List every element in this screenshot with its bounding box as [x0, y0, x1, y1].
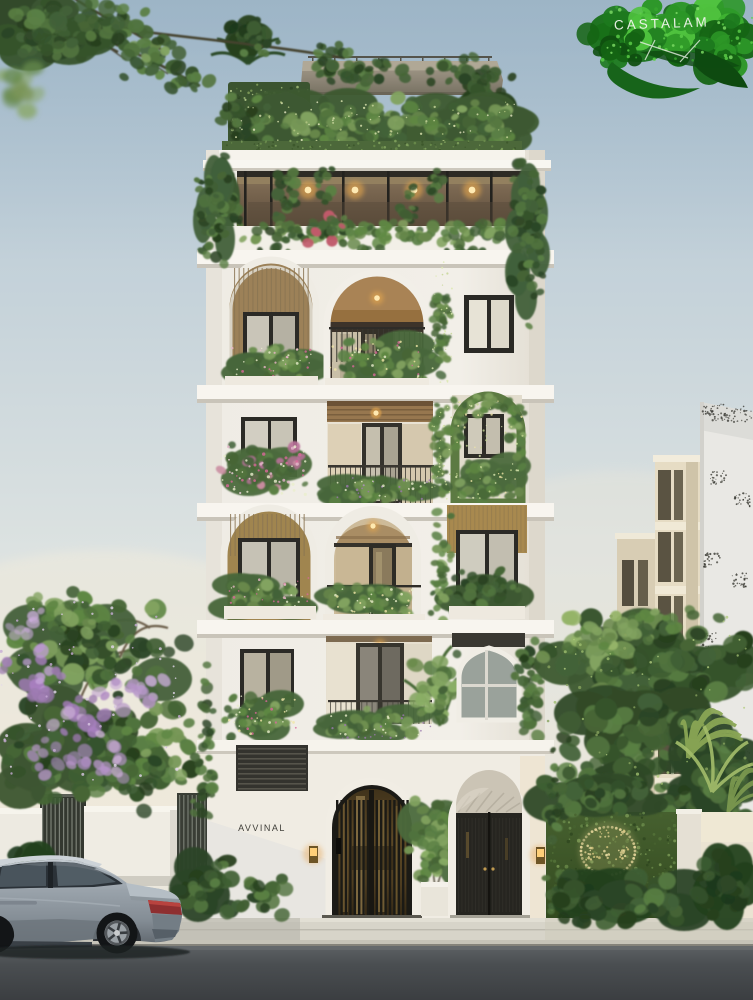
svg-text:AVVINAL: AVVINAL [238, 823, 286, 833]
